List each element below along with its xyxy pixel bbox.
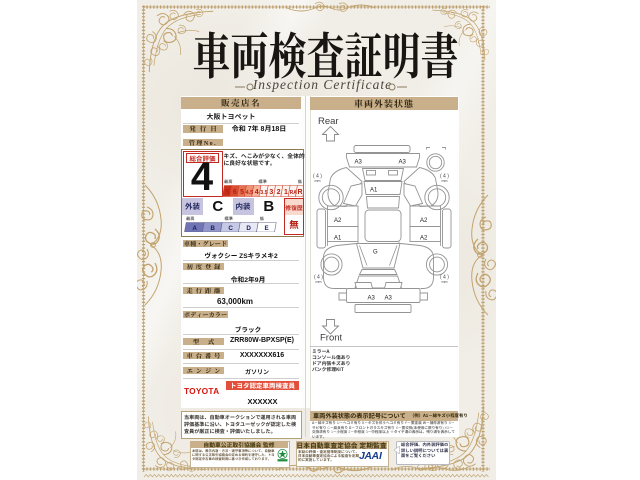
svg-text:4: 4 — [255, 189, 259, 196]
svg-text:A2: A2 — [334, 218, 342, 224]
svg-text:A2: A2 — [420, 218, 428, 224]
svg-text:A2: A2 — [420, 236, 428, 242]
svg-text:A3: A3 — [368, 296, 376, 302]
svg-text:RA: RA — [290, 190, 298, 196]
svg-text:6: 6 — [233, 189, 237, 196]
svg-text:C: C — [228, 225, 233, 232]
svg-text:Rear: Rear — [318, 116, 339, 127]
svg-text:G: G — [373, 250, 378, 256]
svg-text:3: 3 — [269, 189, 273, 196]
svg-text:D: D — [246, 225, 251, 232]
svg-text:5: 5 — [240, 189, 244, 196]
svg-text:3.5: 3.5 — [260, 190, 268, 196]
svg-text:1: 1 — [284, 189, 288, 196]
svg-text:mm: mm — [316, 280, 322, 284]
svg-text:mm: mm — [442, 179, 448, 183]
svg-text:Front: Front — [320, 333, 343, 344]
svg-text:A3: A3 — [355, 160, 363, 166]
svg-text:A3: A3 — [399, 160, 407, 166]
svg-text:A3: A3 — [385, 296, 393, 302]
svg-text:mm: mm — [315, 179, 321, 183]
svg-text:A1: A1 — [370, 188, 378, 194]
svg-text:A: A — [192, 225, 197, 232]
svg-text:2: 2 — [277, 189, 281, 196]
svg-text:B: B — [210, 225, 215, 232]
svg-text:R: R — [297, 189, 302, 196]
svg-text:S: S — [225, 189, 230, 196]
svg-text:E: E — [264, 225, 268, 232]
svg-text:mm: mm — [442, 280, 448, 284]
svg-text:A1: A1 — [334, 236, 342, 242]
svg-text:4.5: 4.5 — [246, 190, 254, 196]
